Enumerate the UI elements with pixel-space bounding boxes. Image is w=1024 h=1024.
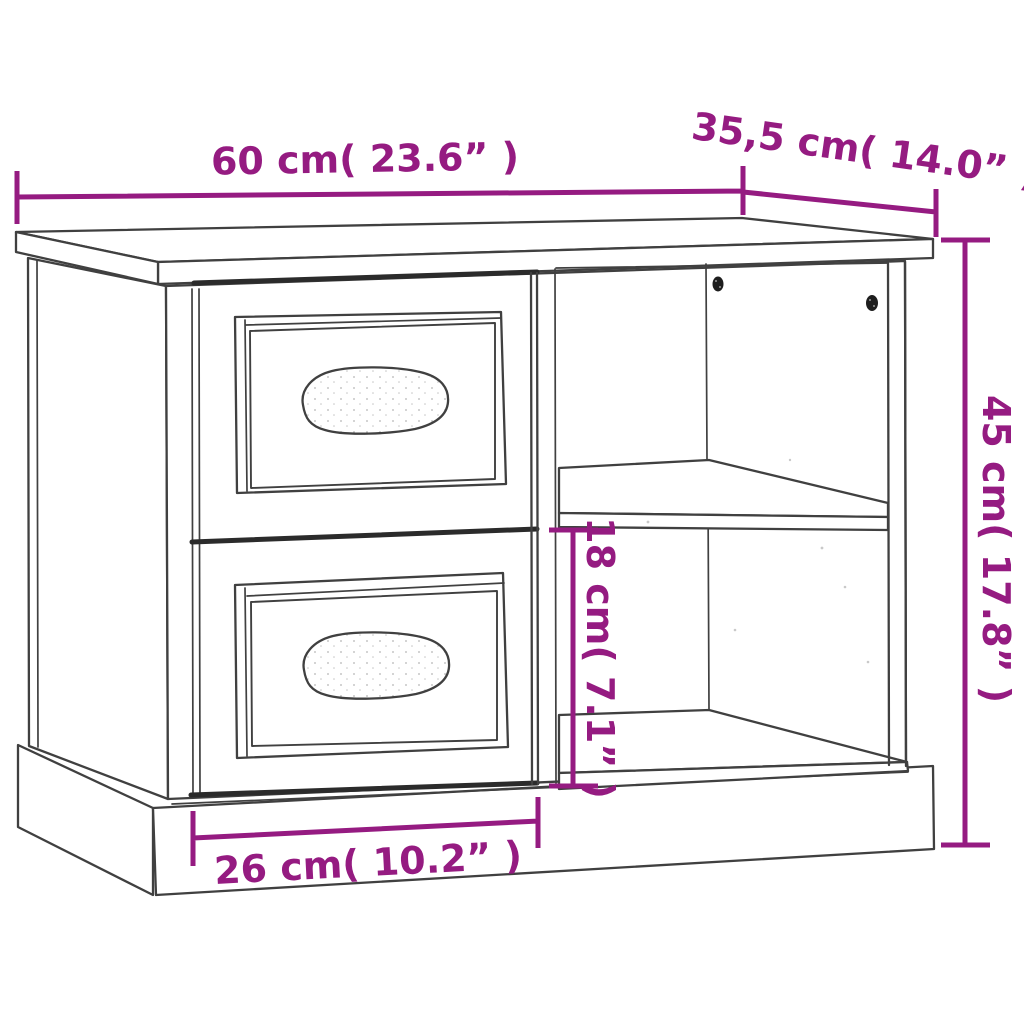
screw-head-right [866,295,878,311]
dimension-compartment-height-label: 18 cm( 7.1” ) [578,517,622,799]
dimension-height-label: 45 cm( 17.8” ) [974,395,1018,703]
side-panel-left [28,258,168,799]
diagram-canvas: 60 cm( 23.6” ) 35,5 cm( 14.0” ) 45 cm( 1… [0,0,1024,1024]
drawer-handle-shell-bottom [304,632,450,698]
dimension-depth-label: 35,5 cm( 14.0” ) [689,104,1024,196]
dimension-width: 60 cm( 23.6” ) [17,134,743,224]
dimension-width-label: 60 cm( 23.6” ) [211,134,520,183]
screw-head-left [713,277,724,292]
product-dimension-diagram: 60 cm( 23.6” ) 35,5 cm( 14.0” ) 45 cm( 1… [0,0,1024,1024]
drawer-handle-shell-top [303,367,449,433]
dimension-height: 45 cm( 17.8” ) [941,240,1018,845]
cabinet-line-drawing [16,218,934,895]
drawer-bottom [235,573,508,758]
drawer-top [235,312,506,493]
